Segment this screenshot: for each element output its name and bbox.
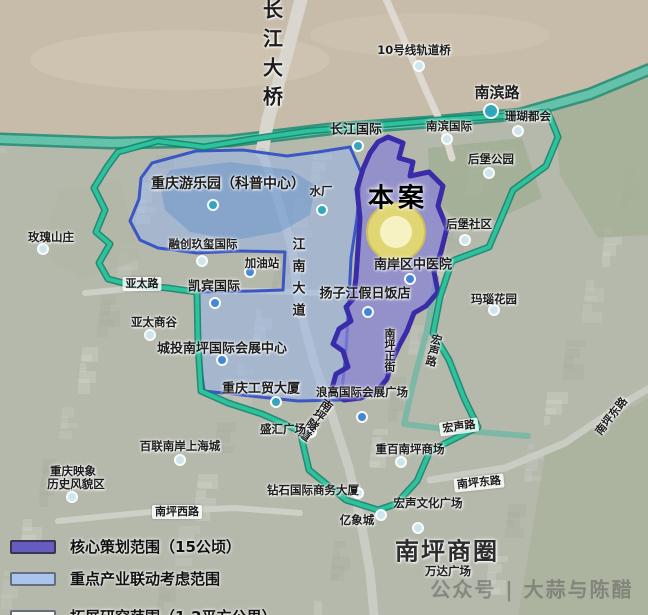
map-label: 江南大道	[288, 237, 307, 325]
map-label: 宏声路	[421, 332, 445, 368]
map-label: 加油站	[245, 255, 280, 271]
map-label: 玫瑰山庄	[28, 229, 74, 245]
map-label: 钻石国际商务大厦	[267, 482, 359, 498]
map-label: 亚太商谷	[131, 314, 177, 330]
legend-label-linkage: 重点产业联动考虑范围	[70, 568, 220, 589]
map-label: 南坪商圈	[395, 532, 499, 567]
map-label: 盛汇广场	[260, 421, 306, 437]
planning-map-image: 长江大桥10号线轨道桥南滨路长江国际南滨国际珊瑚都会后堡公园重庆游乐园（科普中心…	[0, 0, 648, 615]
legend-item-core: 核心策划范围（15公顷）	[10, 536, 277, 557]
map-label: 南坪东路	[591, 394, 631, 439]
map-label: 亿象城	[340, 512, 375, 528]
map-label: 本案	[368, 178, 428, 215]
map-label: 长江大桥	[258, 0, 287, 115]
map-label: 珊瑚都会	[505, 108, 551, 124]
legend-swatch-study	[10, 610, 56, 615]
map-label: 历史风貌区	[47, 476, 105, 492]
legend-swatch-linkage	[10, 572, 56, 586]
map-label: 南坪隧道	[295, 396, 337, 445]
map-label: 长江国际	[330, 119, 382, 138]
map-label: 后堡公园	[468, 151, 514, 167]
legend-item-linkage: 重点产业联动考虑范围	[10, 568, 277, 589]
map-label: 玛瑙花园	[471, 291, 517, 307]
map-label: 凯宾国际	[188, 276, 240, 295]
map-legend: 核心策划范围（15公顷） 重点产业联动考虑范围 拓展研究范围（1.2平方公里）	[10, 536, 277, 615]
legend-label-study: 拓展研究范围（1.2平方公里）	[70, 606, 277, 615]
map-label: 南坪东路	[453, 473, 504, 492]
map-label: 宏声路	[439, 417, 480, 436]
map-label: 重庆工贸大厦	[222, 378, 300, 397]
map-label: 扬子江假日饭店	[319, 283, 410, 302]
map-label: 南坪正街	[381, 328, 397, 372]
map-labels-layer: 长江大桥10号线轨道桥南滨路长江国际南滨国际珊瑚都会后堡公园重庆游乐园（科普中心…	[0, 0, 648, 615]
map-label: 融创玖玺国际	[169, 236, 238, 252]
map-label: 10号线轨道桥	[377, 42, 451, 58]
map-label: 重庆游乐园（科普中心）	[151, 173, 305, 193]
map-label: 百联南岸上海城	[140, 438, 221, 454]
watermark: 公众号 | 大蒜与陈醋	[430, 574, 633, 603]
map-label: 南坪西路	[152, 505, 202, 519]
map-label: 南滨国际	[426, 118, 472, 134]
map-label: 后堡社区	[446, 216, 492, 232]
map-label: 宏声文化广场	[394, 495, 463, 511]
map-label: 亚太路	[123, 277, 162, 291]
legend-swatch-core	[10, 540, 56, 554]
map-label: 水厂	[310, 183, 333, 199]
legend-label-core: 核心策划范围（15公顷）	[70, 536, 241, 557]
map-label: 城投南坪国际会展中心	[157, 338, 287, 357]
map-label: 重百南坪商场	[376, 441, 445, 457]
map-label: 浪高国际会展广场	[316, 384, 408, 400]
map-label: 南岸区中医院	[374, 254, 452, 273]
map-label: 南滨路	[474, 82, 519, 103]
legend-item-study: 拓展研究范围（1.2平方公里）	[10, 606, 277, 615]
